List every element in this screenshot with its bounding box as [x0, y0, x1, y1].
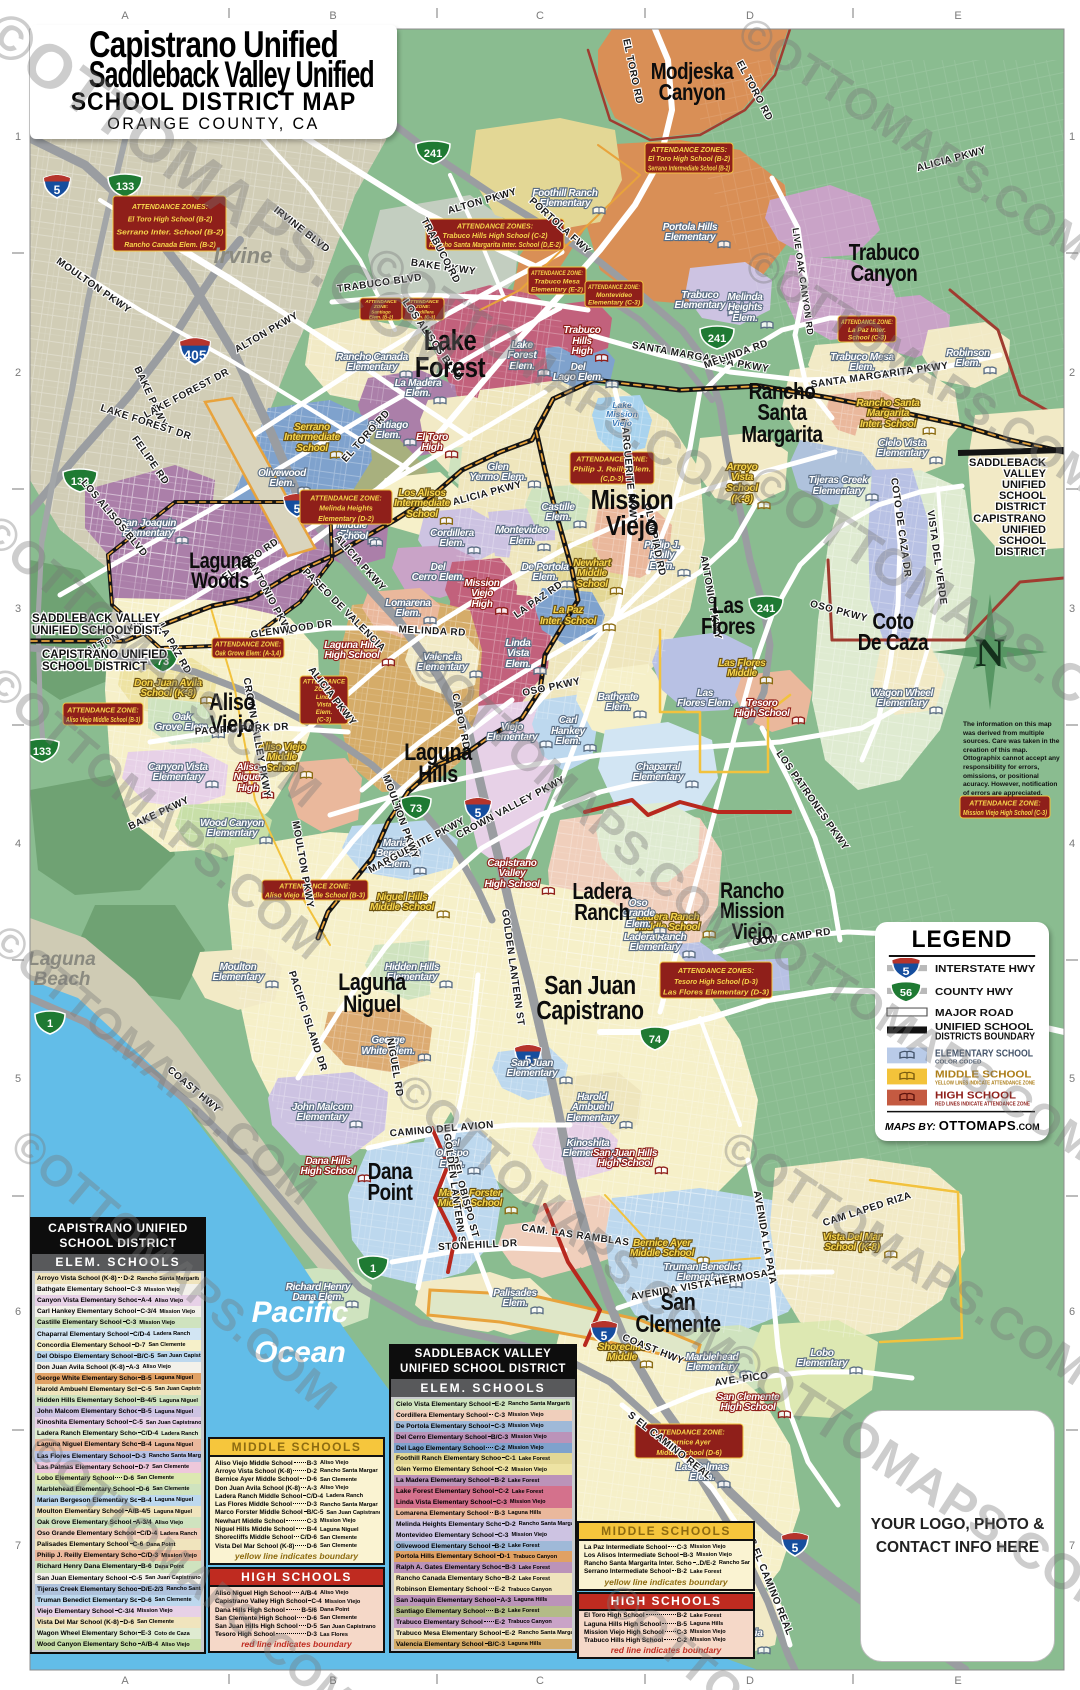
svg-text:Elem.: Elem.	[269, 478, 294, 489]
svg-text:5: 5	[54, 183, 61, 197]
svg-text:ATTENDANCE ZONE:: ATTENDANCE ZONE:	[968, 801, 1040, 808]
svg-text:Hills: Hills	[418, 760, 458, 787]
svg-text:HIGH SCHOOL: HIGH SCHOOL	[935, 1090, 1017, 1101]
svg-text:High: High	[421, 442, 442, 453]
svg-text:ATTENDANCE ZONES:: ATTENDANCE ZONES:	[677, 968, 754, 975]
svg-text:Elem.: Elem.	[732, 313, 757, 324]
svg-text:B: B	[329, 10, 336, 22]
svg-text:Elementary: Elementary	[675, 300, 727, 311]
svg-text:YELLOW LINES INDICATE ATTENDAN: YELLOW LINES INDICATE ATTENDANCE ZONE	[935, 1081, 1035, 1087]
svg-text:sources. Care was taken in the: sources. Care was taken in the	[963, 738, 1060, 745]
svg-text:133: 133	[33, 746, 51, 758]
svg-text:Capistrano: Capistrano	[536, 996, 643, 1026]
svg-text:Elementary: Elementary	[630, 942, 682, 953]
svg-text:acuracy. However, notification: acuracy. However, notification	[963, 781, 1057, 788]
svg-text:7: 7	[1069, 1540, 1075, 1552]
svg-text:Elem.: Elem.	[375, 430, 400, 441]
svg-text:Viejo: Viejo	[612, 418, 632, 428]
svg-text:Elementary: Elementary	[633, 772, 685, 783]
svg-text:Ocean: Ocean	[254, 1336, 346, 1369]
svg-text:Elementary: Elementary	[687, 1362, 739, 1373]
svg-text:MAJOR ROAD: MAJOR ROAD	[935, 1008, 1014, 1019]
svg-text:7: 7	[15, 1540, 21, 1552]
svg-text:Irvine: Irvine	[214, 243, 273, 268]
svg-text:Middle: Middle	[607, 1352, 638, 1363]
svg-text:6: 6	[1069, 1306, 1075, 1318]
svg-text:DISTRICTS BOUNDARY: DISTRICTS BOUNDARY	[935, 1031, 1036, 1042]
svg-text:Rancho Santa Margarita Inter.: Rancho Santa Margarita Inter. School (D,…	[429, 242, 562, 249]
svg-text:Elem.: Elem.	[505, 659, 530, 670]
svg-text:Beach: Beach	[33, 969, 90, 990]
svg-text:Aliso Viejo Middle School (B-3: Aliso Viejo Middle School (B-3)	[65, 717, 140, 724]
svg-text:5: 5	[792, 1541, 799, 1555]
svg-text:ATTENDANCE ZONES:: ATTENDANCE ZONES:	[131, 204, 208, 211]
svg-text:Middle: Middle	[267, 752, 298, 763]
svg-text:2: 2	[15, 367, 21, 379]
svg-text:Mission Viejo High School (C-3: Mission Viejo High School (C-3)	[963, 810, 1048, 817]
svg-text:(C-3): (C-3)	[317, 717, 331, 724]
svg-text:COUNTY HWY: COUNTY HWY	[935, 986, 1014, 997]
svg-text:High: High	[571, 346, 592, 357]
svg-text:5: 5	[601, 1329, 608, 1343]
svg-text:Carl: Carl	[559, 715, 578, 726]
svg-text:De Caza: De Caza	[858, 630, 929, 655]
svg-text:Ranch: Ranch	[574, 900, 630, 925]
svg-text:1: 1	[15, 131, 21, 143]
svg-text:The information on this map: The information on this map	[963, 721, 1052, 728]
svg-text:5: 5	[1069, 1073, 1075, 1085]
svg-text:omissions, or positional: omissions, or positional	[963, 773, 1039, 780]
svg-text:Forest: Forest	[508, 350, 538, 361]
svg-text:Montevideo: Montevideo	[596, 292, 632, 299]
svg-text:School (K-8): School (K-8)	[824, 1242, 880, 1253]
svg-text:Inter. School: Inter. School	[860, 419, 917, 430]
svg-text:Margarita: Margarita	[741, 422, 823, 447]
svg-text:Middle: Middle	[577, 568, 608, 579]
svg-text:C: C	[536, 1675, 544, 1687]
svg-text:3: 3	[15, 603, 21, 615]
svg-text:6: 6	[15, 1306, 21, 1318]
svg-text:Viejo: Viejo	[732, 920, 773, 944]
svg-text:Middle: Middle	[727, 668, 758, 679]
svg-text:ATTENDANCE ZONE:: ATTENDANCE ZONE:	[309, 495, 381, 502]
svg-text:Elementary (E-2): Elementary (E-2)	[531, 287, 584, 294]
svg-text:Elementary: Elementary	[297, 1112, 349, 1123]
svg-text:Niguel: Niguel	[343, 990, 401, 1017]
svg-text:B: B	[329, 1675, 336, 1687]
svg-text:Elementary: Elementary	[207, 828, 259, 839]
svg-text:241: 241	[708, 333, 726, 345]
svg-text:1: 1	[370, 1263, 376, 1275]
svg-text:School: School	[296, 443, 328, 454]
svg-text:Elementary: Elementary	[877, 448, 929, 459]
svg-text:(C,D-3): (C,D-3)	[601, 476, 625, 483]
svg-text:Elem.: Elem.	[439, 538, 464, 549]
svg-text:High School: High School	[597, 1158, 653, 1169]
svg-text:Elementary: Elementary	[665, 232, 717, 243]
svg-text:MIDDLE SCHOOL: MIDDLE SCHOOL	[935, 1069, 1032, 1080]
svg-text:UNIFIED SCHOOL DIST.: UNIFIED SCHOOL DIST.	[32, 625, 162, 637]
svg-text:405: 405	[184, 348, 207, 363]
svg-text:School: School	[406, 509, 438, 520]
svg-text:Elementary: Elementary	[347, 362, 399, 373]
svg-text:Montevideo: Montevideo	[496, 525, 549, 536]
svg-text:Elementary: Elementary	[213, 972, 265, 983]
svg-text:1: 1	[1069, 131, 1075, 143]
svg-text:5: 5	[902, 965, 909, 978]
svg-text:Elem.: Elem.	[395, 608, 420, 619]
svg-text:SADDLEBACK VALLEY: SADDLEBACK VALLEY	[32, 613, 161, 625]
svg-text:Viejo: Viejo	[471, 588, 493, 599]
svg-text:COLOR CODED: COLOR CODED	[935, 1060, 981, 1066]
svg-text:Intermediate: Intermediate	[394, 498, 451, 509]
svg-text:Melinda Heights: Melinda Heights	[319, 506, 373, 513]
svg-text:La Paz Inter.: La Paz Inter.	[848, 327, 886, 334]
svg-text:creation of this map.: creation of this map.	[963, 747, 1028, 754]
svg-text:Elementary: Elementary	[487, 732, 539, 743]
svg-text:Elem.: Elem.	[605, 702, 630, 713]
svg-text:School (K-8): School (K-8)	[140, 688, 196, 699]
svg-text:School: School	[726, 483, 758, 494]
svg-text:Intermediate: Intermediate	[284, 432, 341, 443]
svg-text:Ambuehl: Ambuehl	[571, 1102, 613, 1113]
svg-text:73: 73	[410, 803, 422, 815]
svg-text:133: 133	[116, 181, 134, 193]
svg-text:High School: High School	[324, 650, 380, 661]
svg-text:Elem.: Elem.	[545, 512, 570, 523]
svg-text:A: A	[121, 10, 129, 22]
svg-text:Elementary: Elementary	[877, 698, 929, 709]
svg-text:ATTENDANCE ZONE:: ATTENDANCE ZONE:	[587, 284, 640, 291]
svg-text:Tesoro High School (D-3): Tesoro High School (D-3)	[674, 979, 758, 986]
svg-text:High School: High School	[734, 708, 790, 719]
svg-text:ATTENDANCE ZONE:: ATTENDANCE ZONE:	[530, 270, 583, 277]
svg-text:ATTENDANCE ZONE:: ATTENDANCE ZONE:	[278, 884, 350, 891]
svg-text:A: A	[121, 1675, 129, 1687]
svg-text:Point: Point	[367, 1180, 412, 1205]
svg-text:Pacific: Pacific	[252, 1296, 349, 1329]
svg-text:Elementary: Elementary	[153, 772, 205, 783]
svg-text:Cerro Elem.: Cerro Elem.	[412, 572, 465, 583]
svg-text:Forest: Forest	[415, 351, 486, 384]
svg-text:ELEMENTARY SCHOOL: ELEMENTARY SCHOOL	[935, 1048, 1033, 1059]
svg-text:3: 3	[1069, 603, 1075, 615]
svg-text:DISTRICT: DISTRICT	[995, 501, 1046, 513]
svg-text:SCHOOL DISTRICT: SCHOOL DISTRICT	[42, 661, 147, 673]
svg-text:Tijeras Creek: Tijeras Creek	[809, 475, 868, 486]
svg-text:responsibility for error: responsibility for errors,	[963, 764, 1039, 771]
svg-text:Middle School: Middle School	[630, 1248, 694, 1259]
svg-text:Elem.: Elem.	[555, 736, 580, 747]
svg-text:ATTENDANCE ZONE:: ATTENDANCE ZONE:	[214, 642, 281, 649]
svg-text:El Toro High School (B-2): El Toro High School (B-2)	[648, 156, 731, 163]
svg-text:High School: High School	[300, 1166, 356, 1177]
svg-text:ATTENDANCE ZONES:: ATTENDANCE ZONES:	[650, 147, 727, 154]
svg-text:ATTENDANCE ZONE:: ATTENDANCE ZONE:	[840, 319, 893, 326]
svg-text:Elementary (D-2): Elementary (D-2)	[318, 516, 374, 523]
svg-text:Serrano Inter. School (B-2): Serrano Inter. School (B-2)	[117, 229, 225, 236]
svg-text:ATTENDANCE ZONE:: ATTENDANCE ZONE:	[575, 457, 647, 464]
svg-text:School (C-3): School (C-3)	[848, 335, 886, 342]
svg-text:Elem.: Elem.	[509, 536, 534, 547]
svg-text:56: 56	[900, 988, 912, 998]
svg-text:Laguna: Laguna	[28, 949, 96, 970]
svg-text:Flores Elem.: Flores Elem.	[677, 698, 733, 709]
svg-text:RED LINES INDICATE ATTENDANCE: RED LINES INDICATE ATTENDANCE ZONE	[935, 1102, 1030, 1108]
svg-text:Elem.: Elem.	[405, 388, 430, 399]
svg-text:Lago Elem.: Lago Elem.	[553, 372, 603, 383]
svg-text:Elementary: Elementary	[813, 486, 865, 497]
svg-text:High: High	[237, 783, 258, 794]
svg-text:CAPISTRANO UNIFIED: CAPISTRANO UNIFIED	[42, 649, 167, 661]
svg-text:Elementary (C-3): Elementary (C-3)	[588, 300, 640, 307]
svg-text:241: 241	[757, 603, 775, 615]
svg-text:74: 74	[649, 1034, 662, 1046]
svg-text:5: 5	[15, 1073, 21, 1085]
svg-text:El Toro High School (B-2): El Toro High School (B-2)	[128, 217, 213, 224]
svg-text:Elem.: Elem.	[316, 709, 333, 716]
svg-text:Vista: Vista	[317, 702, 332, 709]
svg-text:2: 2	[1069, 367, 1075, 379]
svg-text:Clemente: Clemente	[635, 1310, 721, 1337]
svg-text:D: D	[746, 10, 754, 22]
svg-text:Heights: Heights	[728, 302, 763, 313]
svg-text:Serrano Intermediate School (B: Serrano Intermediate School (B-2)	[648, 165, 730, 172]
svg-text:Oak Grove Elem: (A-3,4): Oak Grove Elem: (A-3,4)	[215, 650, 282, 657]
svg-text:241: 241	[424, 148, 442, 160]
svg-text:E: E	[954, 10, 961, 22]
svg-text:Ottographix cannot accept any: Ottographix cannot accept any	[963, 755, 1060, 762]
svg-text:4: 4	[15, 838, 21, 850]
svg-text:Woods: Woods	[191, 569, 249, 593]
svg-text:Viejo: Viejo	[606, 511, 658, 542]
svg-text:Elem.: Elem.	[532, 572, 557, 583]
svg-text:Elem.: Elem.	[502, 1298, 527, 1309]
svg-text:School: School	[576, 579, 608, 590]
svg-text:C: C	[536, 10, 544, 22]
svg-text:High School: High School	[720, 1402, 776, 1413]
svg-text:ATTENDANCE ZONE:: ATTENDANCE ZONE:	[66, 708, 138, 715]
svg-text:Philip J. Reilly Elem.: Philip J. Reilly Elem.	[573, 466, 651, 473]
svg-text:Canyon: Canyon	[659, 80, 726, 105]
svg-text:Margarita: Margarita	[867, 408, 910, 419]
svg-text:Las Flores Elementary (D-3): Las Flores Elementary (D-3)	[663, 990, 770, 997]
svg-text:Middle School: Middle School	[370, 902, 434, 913]
svg-text:High School: High School	[484, 879, 540, 890]
svg-text:Rancho Canada Elem. (B-2): Rancho Canada Elem. (B-2)	[124, 242, 216, 249]
svg-text:Elementary: Elementary	[507, 1068, 559, 1079]
svg-text:INTERSTATE HWY: INTERSTATE HWY	[935, 964, 1036, 975]
svg-text:1: 1	[47, 1018, 53, 1030]
svg-text:Inter. School: Inter. School	[540, 616, 597, 627]
svg-text:La Paz: La Paz	[553, 605, 583, 616]
svg-text:ATTENDANCE ZONES:: ATTENDANCE ZONES:	[456, 223, 533, 230]
svg-text:Canyon: Canyon	[851, 261, 918, 286]
svg-text:D: D	[746, 1675, 754, 1687]
svg-text:was derived from multiple: was derived from multiple	[962, 730, 1045, 737]
svg-text:Valley: Valley	[499, 868, 526, 879]
svg-text:E: E	[954, 1675, 961, 1687]
svg-text:Elem.: Elem.	[509, 361, 534, 372]
svg-text:Vista: Vista	[507, 648, 530, 659]
svg-text:4: 4	[1069, 838, 1075, 850]
svg-text:of errors are appreciated.: of errors are appreciated.	[963, 790, 1043, 797]
svg-text:(K-8): (K-8)	[731, 494, 753, 505]
svg-text:Vista: Vista	[731, 472, 754, 483]
svg-text:High: High	[471, 599, 492, 610]
svg-text:Elementary: Elementary	[417, 662, 469, 673]
svg-text:School: School	[266, 763, 298, 774]
svg-text:Elem.: Elem.	[955, 358, 980, 369]
svg-text:Trabuco Hills High School (C-2: Trabuco Hills High School (C-2)	[443, 233, 549, 240]
svg-text:Elem. (B-2): Elem. (B-2)	[369, 315, 393, 320]
svg-text:Flores: Flores	[701, 614, 755, 639]
svg-text:DISTRICT: DISTRICT	[995, 546, 1046, 558]
svg-text:Trabuco Mesa: Trabuco Mesa	[534, 278, 580, 285]
svg-text:Trabuco: Trabuco	[563, 325, 600, 336]
svg-text:Elementary: Elementary	[797, 1358, 849, 1369]
svg-text:N: N	[976, 630, 1005, 675]
svg-text:Elementary: Elementary	[567, 1113, 619, 1124]
svg-text:Viejo: Viejo	[210, 710, 255, 737]
